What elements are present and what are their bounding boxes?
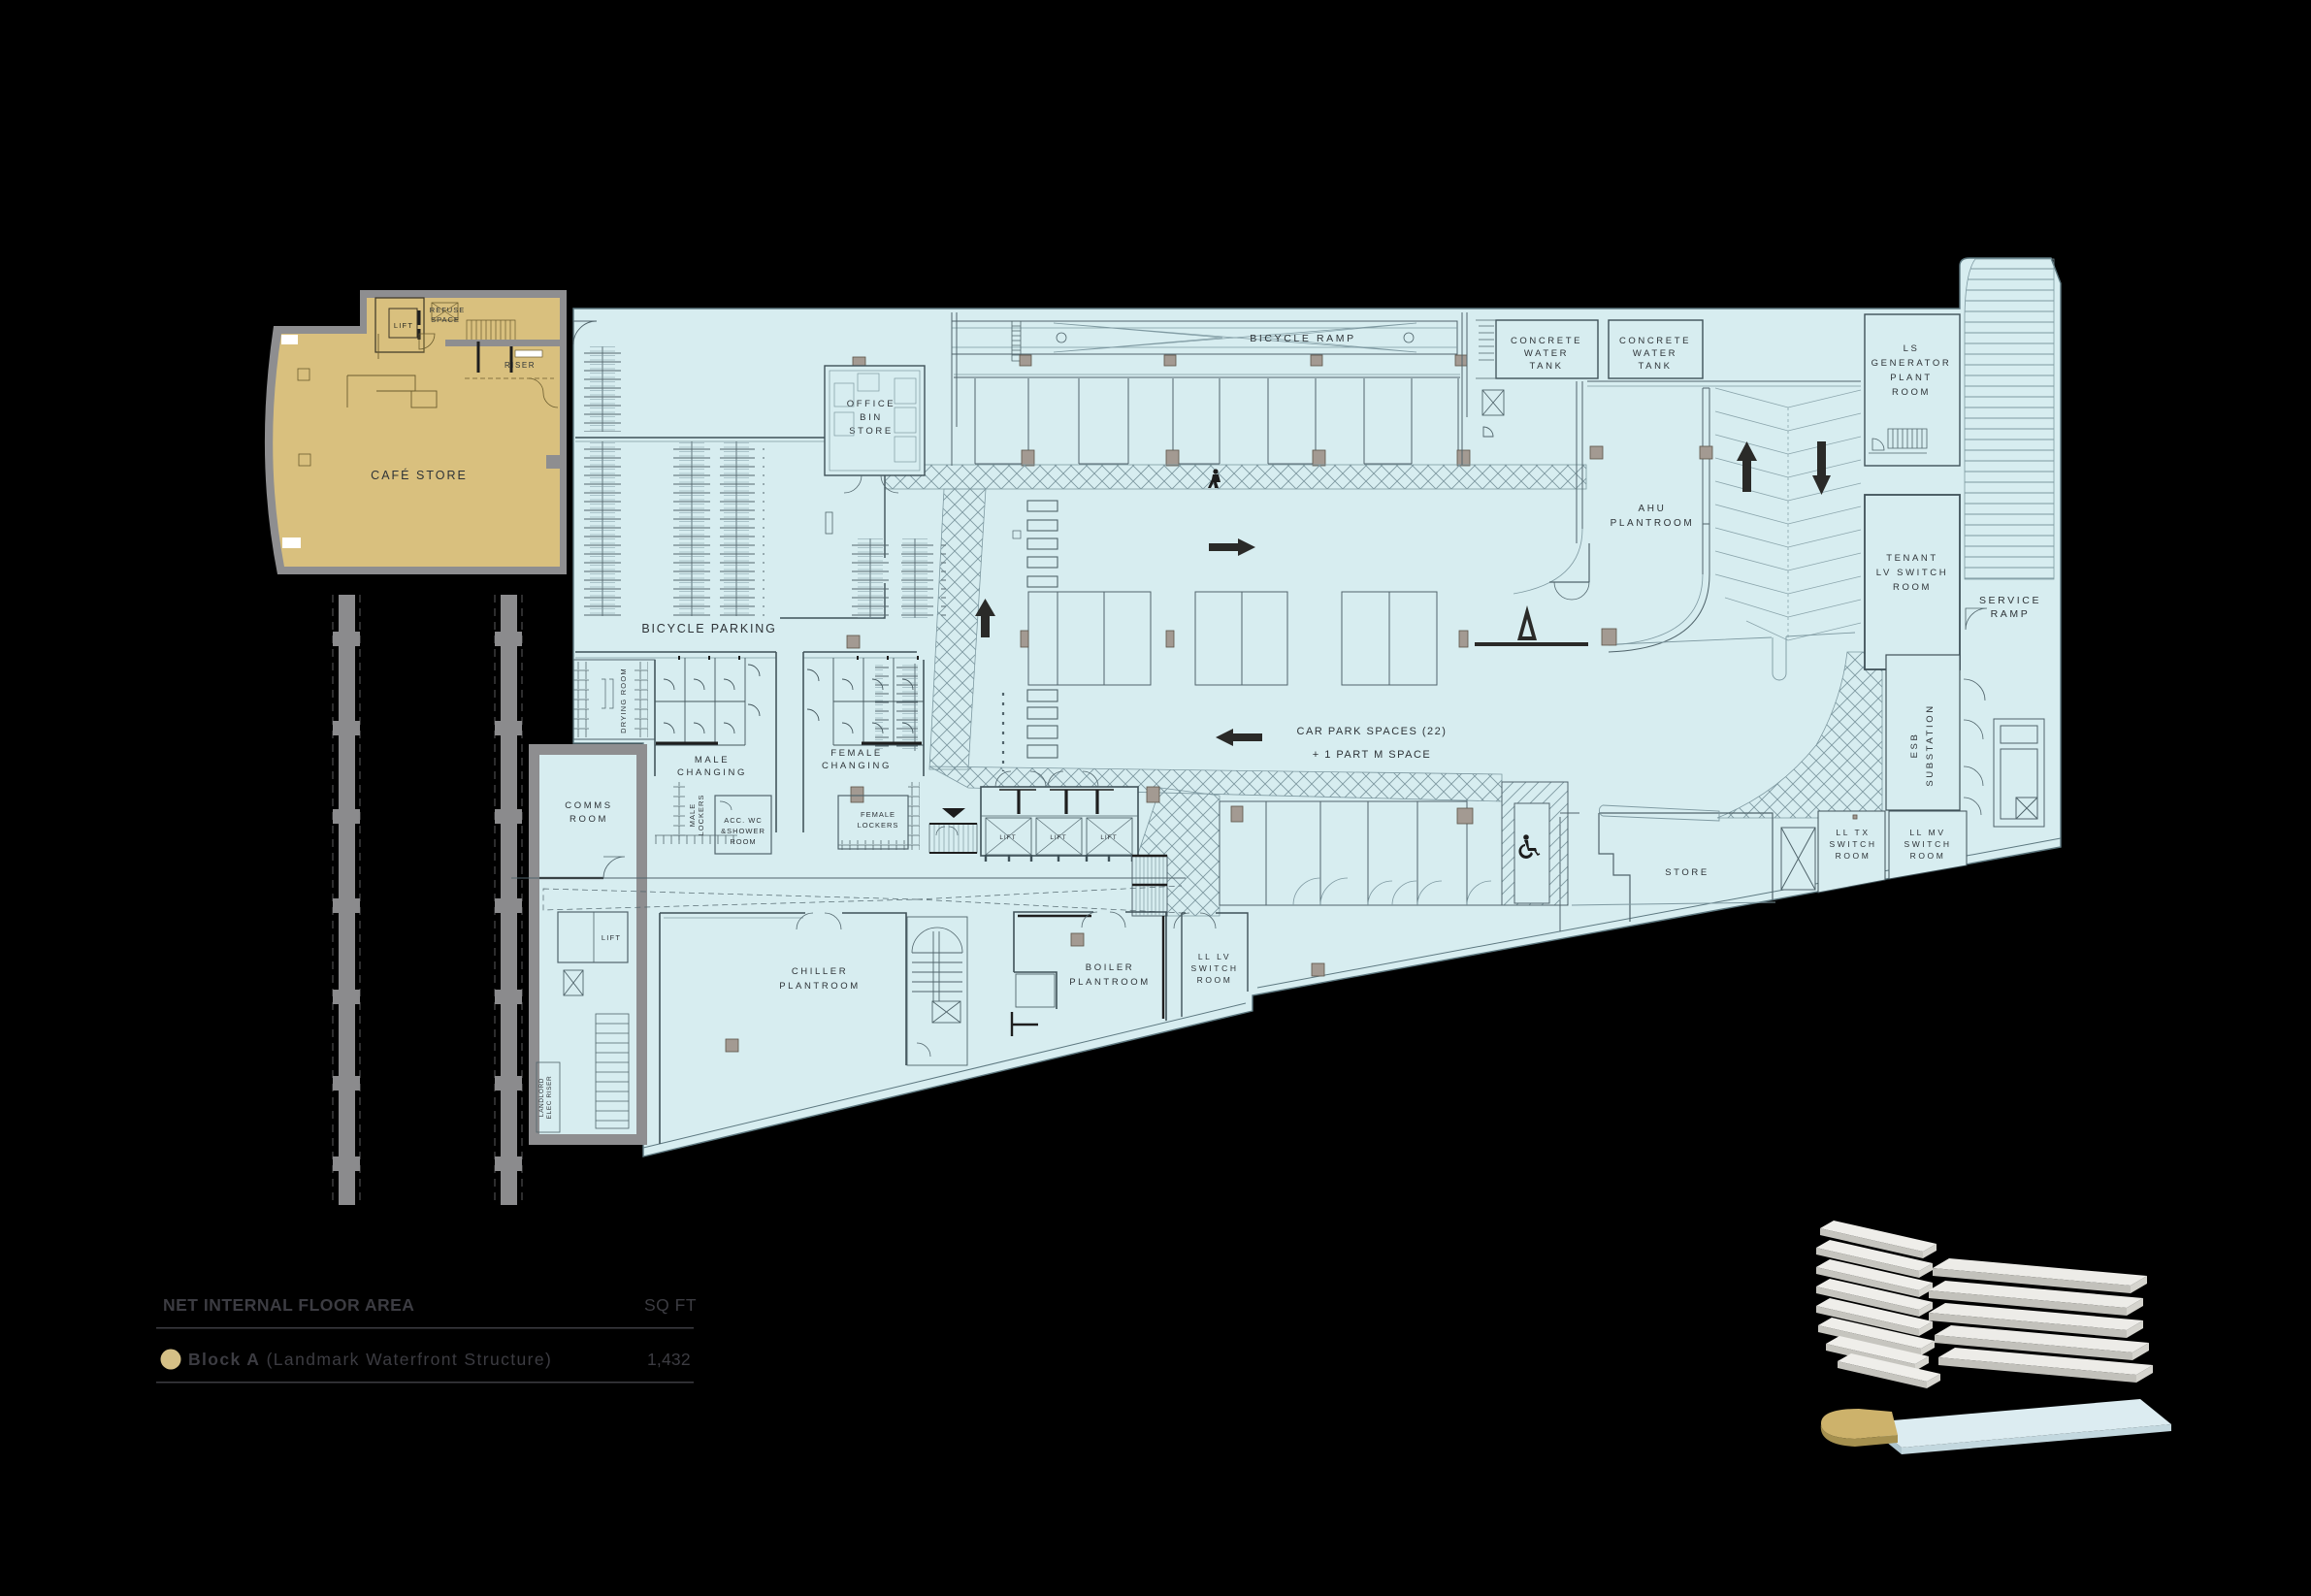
svg-text:1,432: 1,432 bbox=[647, 1350, 691, 1369]
svg-text:CHILLER: CHILLER bbox=[792, 966, 848, 977]
svg-text:SUBSTATION: SUBSTATION bbox=[1925, 703, 1936, 786]
svg-text:SQ FT: SQ FT bbox=[644, 1295, 697, 1315]
svg-text:CONCRETE: CONCRETE bbox=[1619, 336, 1691, 346]
svg-text:ROOM: ROOM bbox=[1893, 582, 1932, 593]
svg-text:FEMALE: FEMALE bbox=[861, 810, 895, 819]
svg-text:PLANTROOM: PLANTROOM bbox=[779, 981, 861, 992]
svg-text:LIFT: LIFT bbox=[999, 834, 1016, 841]
svg-text:COMMS: COMMS bbox=[565, 800, 612, 811]
svg-text:GENERATOR: GENERATOR bbox=[1872, 358, 1952, 369]
svg-text:BICYCLE RAMP: BICYCLE RAMP bbox=[1250, 333, 1355, 344]
svg-text:LIFT: LIFT bbox=[1100, 834, 1117, 841]
svg-text:RAMP: RAMP bbox=[1991, 608, 2031, 620]
svg-text:+ 1 PART M SPACE: + 1 PART M SPACE bbox=[1313, 749, 1432, 761]
svg-text:ROOM: ROOM bbox=[730, 837, 756, 846]
svg-text:PLANTROOM: PLANTROOM bbox=[1069, 977, 1151, 988]
svg-text:NET INTERNAL FLOOR AREA: NET INTERNAL FLOOR AREA bbox=[163, 1295, 414, 1315]
svg-text:LL TX: LL TX bbox=[1836, 828, 1870, 837]
svg-text:ROOM: ROOM bbox=[1197, 975, 1233, 985]
svg-text:STORE: STORE bbox=[849, 426, 894, 437]
svg-text:WATER: WATER bbox=[1524, 348, 1569, 359]
svg-text:ROOM: ROOM bbox=[1910, 851, 1946, 861]
svg-text:LOCKERS: LOCKERS bbox=[858, 821, 899, 830]
svg-text:PLANT: PLANT bbox=[1890, 373, 1933, 383]
svg-text:LL LV: LL LV bbox=[1198, 952, 1231, 961]
svg-text:WATER: WATER bbox=[1633, 348, 1677, 359]
svg-text:ROOM: ROOM bbox=[570, 814, 608, 825]
svg-text:SWITCH: SWITCH bbox=[1829, 839, 1876, 849]
svg-text:LL MV: LL MV bbox=[1909, 828, 1945, 837]
svg-text:LIFT: LIFT bbox=[602, 933, 621, 942]
svg-text:MALE: MALE bbox=[688, 803, 697, 827]
svg-text:TENANT: TENANT bbox=[1886, 553, 1938, 564]
svg-text:SPACE: SPACE bbox=[431, 315, 460, 324]
svg-text:REFUSE: REFUSE bbox=[430, 306, 465, 314]
svg-text:TANK: TANK bbox=[1638, 361, 1672, 372]
svg-text:LV SWITCH: LV SWITCH bbox=[1876, 568, 1948, 578]
svg-text:ESB: ESB bbox=[1909, 733, 1920, 759]
svg-text:STORE: STORE bbox=[1665, 867, 1709, 878]
svg-text:SWITCH: SWITCH bbox=[1904, 839, 1951, 849]
svg-text:LOCKERS: LOCKERS bbox=[697, 795, 705, 836]
svg-text:MALE: MALE bbox=[695, 755, 730, 765]
svg-text:LIFT: LIFT bbox=[1050, 834, 1066, 841]
svg-text:PLANTROOM: PLANTROOM bbox=[1611, 518, 1695, 529]
svg-text:ELEC RISER: ELEC RISER bbox=[546, 1076, 553, 1120]
svg-text:LIFT: LIFT bbox=[394, 321, 413, 330]
svg-text:BOILER: BOILER bbox=[1086, 962, 1134, 973]
svg-text:ROOM: ROOM bbox=[1836, 851, 1872, 861]
svg-text:ROOM: ROOM bbox=[1892, 387, 1931, 398]
svg-text:AHU: AHU bbox=[1639, 504, 1667, 514]
svg-text:BICYCLE PARKING: BICYCLE PARKING bbox=[641, 622, 776, 635]
svg-text:DRYING ROOM: DRYING ROOM bbox=[619, 668, 628, 733]
svg-text:RISER: RISER bbox=[505, 361, 536, 370]
svg-text:CHANGING: CHANGING bbox=[677, 767, 747, 778]
svg-text:ACC. WC: ACC. WC bbox=[724, 816, 763, 825]
svg-text:Block A (Landmark Waterfront S: Block A (Landmark Waterfront Structure) bbox=[188, 1350, 552, 1369]
svg-text:CAR PARK SPACES (22): CAR PARK SPACES (22) bbox=[1297, 726, 1448, 737]
svg-text:CHANGING: CHANGING bbox=[822, 761, 892, 771]
svg-text:&SHOWER: &SHOWER bbox=[721, 827, 765, 835]
svg-text:SERVICE: SERVICE bbox=[1979, 595, 2041, 606]
svg-text:BIN: BIN bbox=[860, 412, 883, 423]
svg-text:CAFÉ STORE: CAFÉ STORE bbox=[371, 468, 468, 482]
svg-text:LANDLORD: LANDLORD bbox=[538, 1078, 545, 1117]
svg-text:FEMALE: FEMALE bbox=[830, 748, 883, 759]
svg-text:LS: LS bbox=[1904, 343, 1920, 354]
svg-text:CONCRETE: CONCRETE bbox=[1511, 336, 1582, 346]
svg-text:TANK: TANK bbox=[1529, 361, 1563, 372]
svg-text:SWITCH: SWITCH bbox=[1190, 963, 1238, 973]
